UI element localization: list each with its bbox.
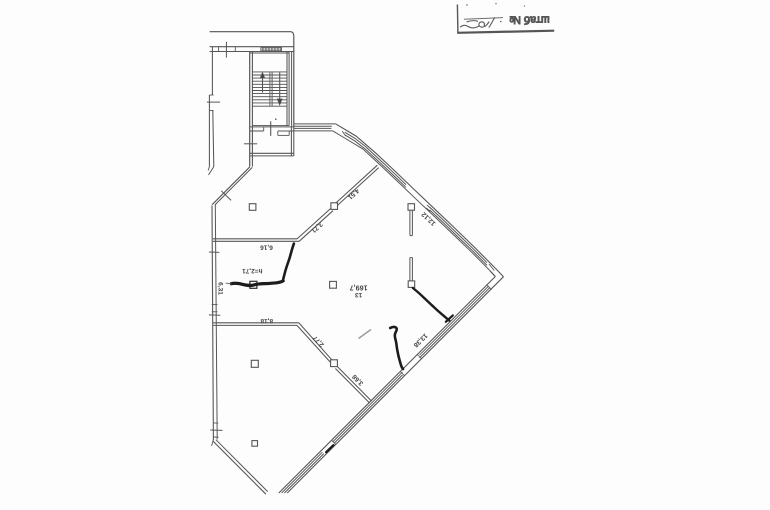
svg-text:8,18: 8,18 (260, 317, 273, 324)
svg-text:2,77: 2,77 (312, 334, 326, 348)
svg-text:3,71: 3,71 (309, 220, 323, 234)
svg-text:169,7: 169,7 (350, 284, 368, 293)
svg-text:3,68: 3,68 (351, 373, 365, 387)
svg-text:6,31: 6,31 (217, 282, 224, 295)
svg-text:6,16: 6,16 (260, 244, 273, 251)
svg-text:h=2,71: h=2,71 (242, 267, 263, 274)
svg-text:штаб №: штаб № (509, 14, 550, 26)
svg-text:4,51: 4,51 (346, 187, 360, 201)
